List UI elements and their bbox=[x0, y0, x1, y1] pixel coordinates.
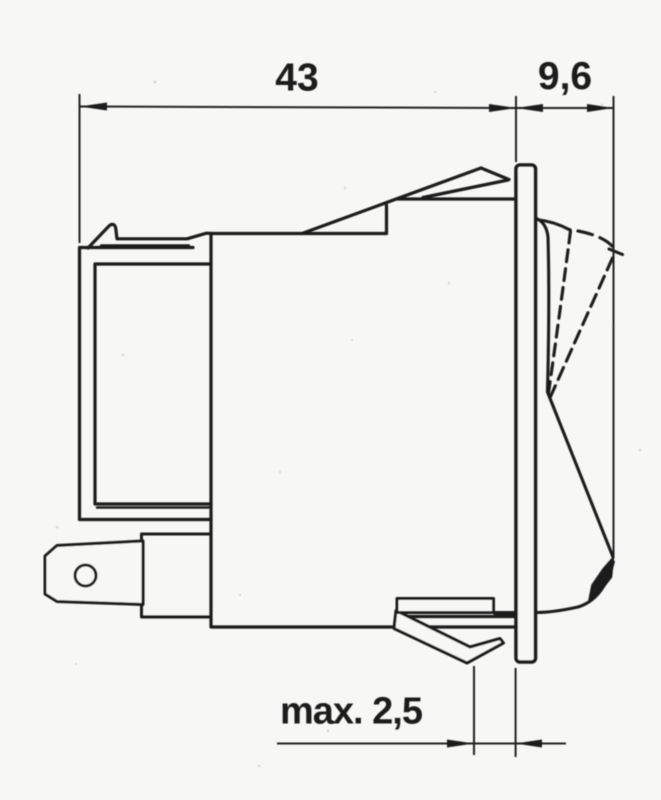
svg-text:43: 43 bbox=[275, 57, 318, 100]
svg-text:max. 2,5: max. 2,5 bbox=[280, 691, 423, 733]
svg-text:9,6: 9,6 bbox=[538, 55, 592, 98]
